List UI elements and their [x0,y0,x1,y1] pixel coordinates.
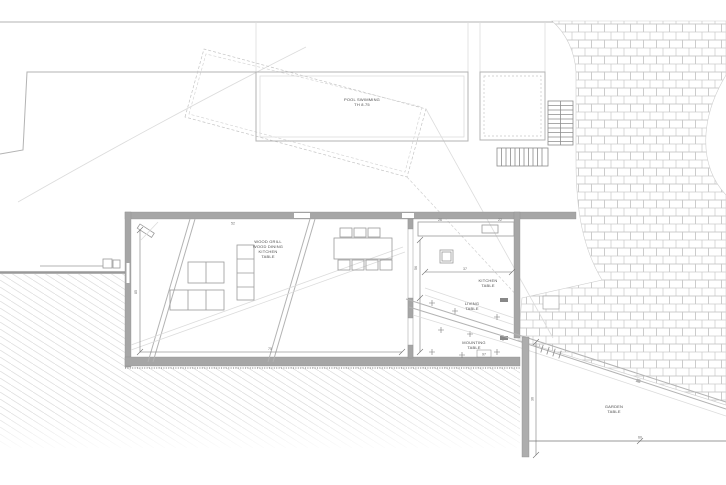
wall-top [125,212,576,219]
floor-plan-canvas: POOL SWIMMING TH 8.75 [0,0,726,485]
wall-right [514,212,520,338]
floor-plan-page: POOL SWIMMING TH 8.75 [0,0,726,485]
living-furniture [170,245,254,310]
dim-counter-b: 22 [498,218,502,222]
sideboard [237,245,254,300]
kitchen-label-line2: TABLE [481,283,495,288]
dim-terrace-side: 36 [531,397,535,401]
dim-room-width: 75 [268,347,272,351]
door-opening-top-1 [294,213,310,218]
door-opening-top-2 [402,213,414,218]
pool-deck [480,72,545,140]
kitchen-room: 26 22 56 37 KITCHEN TABLE [414,218,515,355]
wall-left [125,212,131,367]
terrace-wall-left [522,337,529,457]
deck-stairs [548,101,573,145]
roof-dashed-outline [185,49,520,299]
wall-left-niche [127,263,130,283]
terrain-diagonal-line [426,109,553,338]
deck-lower-stairs [497,148,548,166]
dim-kitchen-width: 37 [463,267,467,271]
dim-counter-a: 26 [438,218,442,222]
chair [354,228,366,237]
dim-kitchen-height: 56 [414,266,418,270]
kitchen-sink [482,225,498,233]
dining-table [334,238,392,259]
outdoor-bench [40,259,120,268]
sofa [170,290,224,310]
garden-label-line2: TABLE [607,409,621,414]
dim-threshold: 97 [482,353,486,357]
dim-terrace-bottom: 60 [638,436,642,440]
chair [380,260,392,270]
hatch-fade [0,412,520,452]
wall-bottom [125,357,520,366]
chair [340,228,352,237]
pool-label-line2: TH 8.75 [354,102,370,107]
mounting-label-line2: TABLE [467,345,481,350]
wall-center [408,219,413,358]
entry-door-swing [137,222,158,240]
dim-room-height: 85 [134,290,138,294]
kitchen-counter [418,222,514,236]
swimming-pool: POOL SWIMMING TH 8.75 [256,72,468,141]
dim-top-wall: 52 [231,222,235,226]
main-room-label-line4: TABLE [261,254,275,259]
dim-walkway: 28 [636,379,641,384]
exterior-unit-box [543,296,559,309]
living-label-line2: TABLE [465,306,479,311]
terrain-contour-line [18,47,306,202]
chair [368,228,380,237]
dining-set [334,228,392,270]
wall-anchor [500,298,508,302]
